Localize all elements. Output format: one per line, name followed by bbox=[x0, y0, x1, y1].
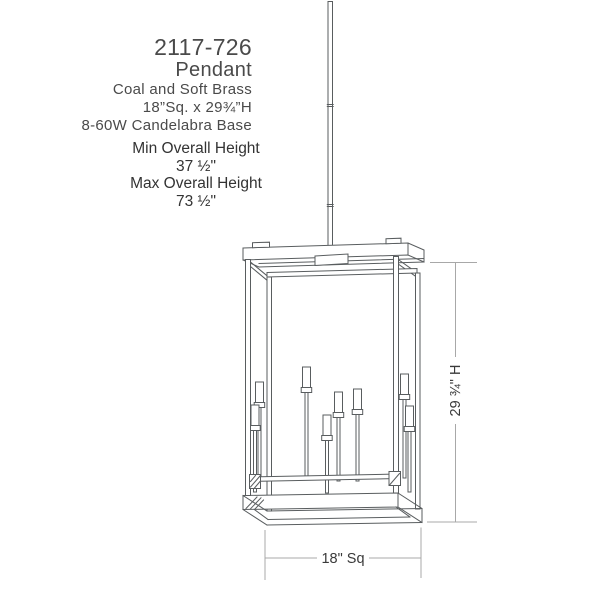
pendant-line-drawing: 29 ¾" H 18" Sq bbox=[0, 0, 600, 600]
candle-drawing bbox=[352, 389, 363, 481]
height-dimension-label: 29 ¾" H bbox=[448, 365, 464, 417]
socket-box-drawing bbox=[315, 254, 348, 266]
width-dimension-label: 18" Sq bbox=[321, 551, 364, 567]
hang-rod-drawing bbox=[327, 2, 333, 247]
front-right-post-drawing bbox=[394, 257, 399, 494]
bottom-frame-drawing bbox=[243, 493, 422, 525]
candle-drawing bbox=[301, 367, 312, 480]
front-left-post-drawing bbox=[246, 260, 251, 496]
back-right-post-drawing bbox=[416, 273, 421, 509]
candle-drawing bbox=[333, 392, 344, 481]
candle-drawing bbox=[322, 415, 333, 493]
back-left-post-drawing bbox=[267, 277, 272, 511]
dimension-lines bbox=[265, 263, 477, 581]
